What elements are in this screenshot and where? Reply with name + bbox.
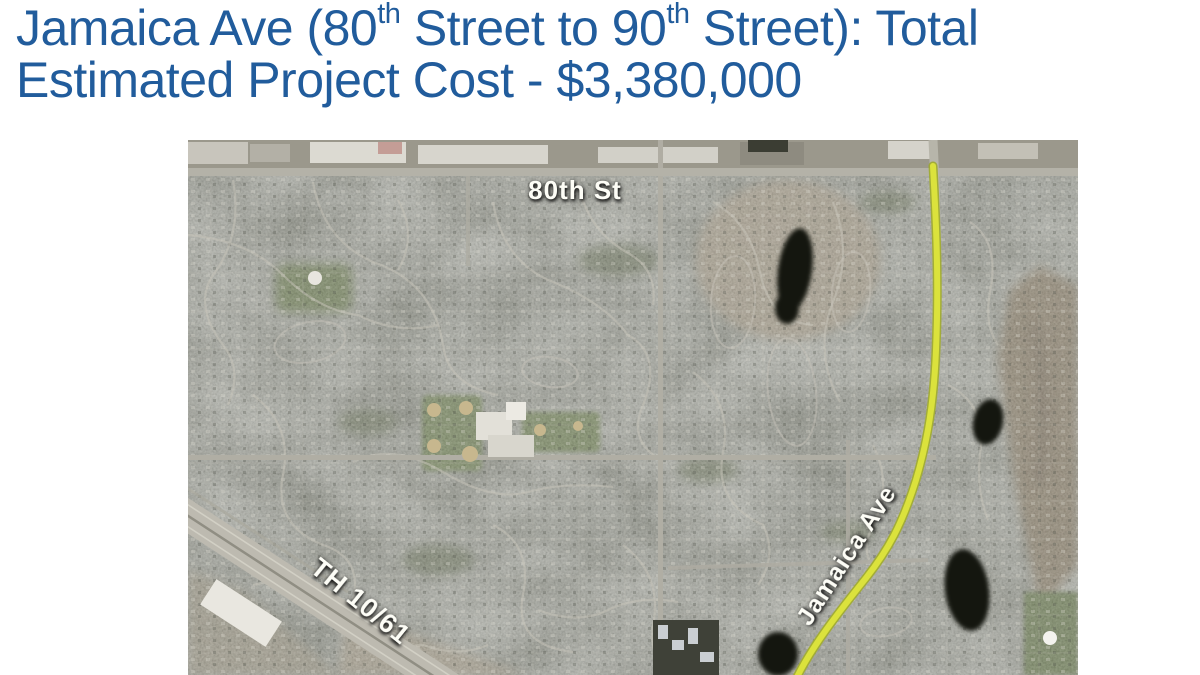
road-80th-st (188, 168, 1078, 176)
big-box-building (888, 141, 934, 159)
commercial-strip (188, 140, 1078, 168)
aerial-map-image: 80th St TH 10/61 Jamaica Ave (188, 140, 1078, 675)
pink-roof-building (378, 142, 402, 154)
title-text: Street to 90 (400, 0, 666, 56)
dome-building (1043, 631, 1057, 645)
title-text: Estimated Project Cost - $3,380,000 (16, 52, 802, 108)
title-text: Street): Total (690, 0, 979, 56)
road-vertical-collector (658, 176, 663, 675)
big-box-building (418, 145, 548, 164)
park-building (308, 271, 322, 285)
apartment-complex (653, 620, 719, 675)
title-superscript: th (377, 0, 400, 30)
slide-title-line2: Estimated Project Cost - $3,380,000 (16, 54, 1196, 106)
title-text: Jamaica Ave (80 (16, 0, 377, 56)
dark-roof-building (748, 140, 788, 152)
pond (775, 292, 799, 324)
label-80th-st: 80th St (528, 175, 622, 205)
pond (758, 632, 798, 675)
slide-title: Jamaica Ave (80th Street to 90th Street)… (16, 2, 1196, 106)
title-superscript: th (666, 0, 689, 30)
aerial-map: 80th St TH 10/61 Jamaica Ave (188, 140, 1078, 675)
slide-title-line1: Jamaica Ave (80th Street to 90th Street)… (16, 2, 1196, 54)
slide: Jamaica Ave (80th Street to 90th Street)… (0, 0, 1200, 675)
road-horizontal-collector (188, 455, 936, 460)
